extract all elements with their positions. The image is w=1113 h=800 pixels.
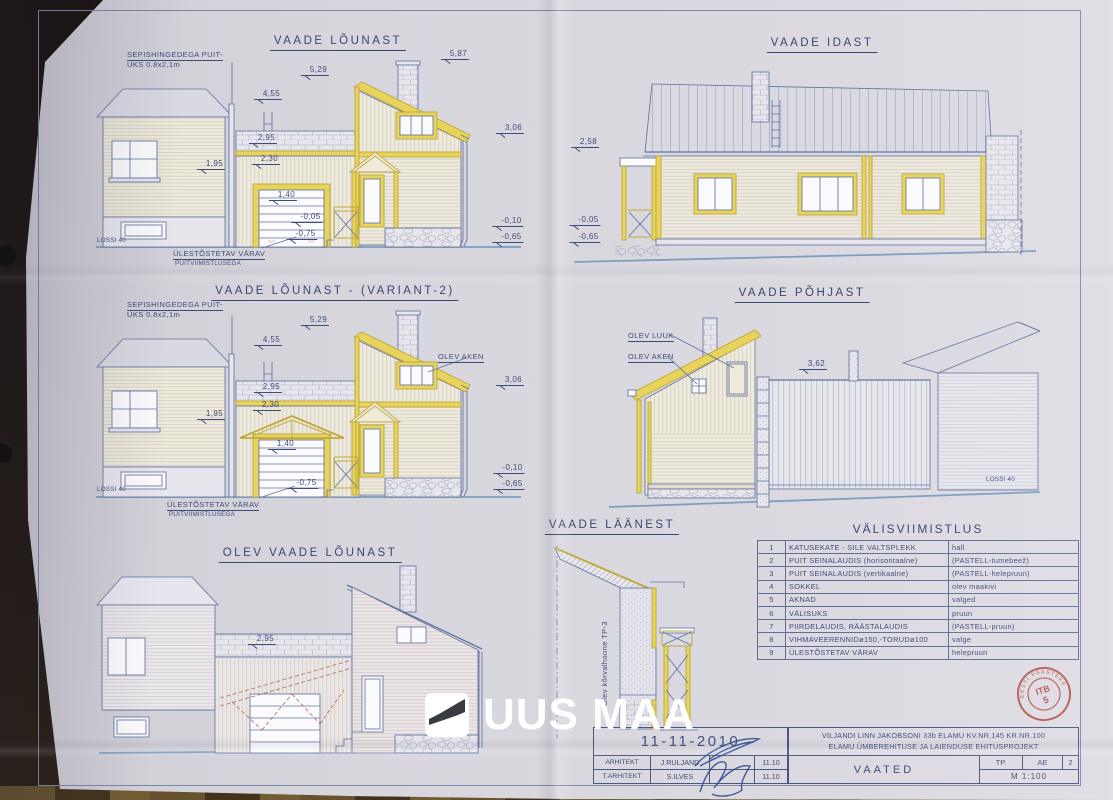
- finish-row-number: 2: [758, 554, 786, 566]
- finish-row-value: (PASTELL-pruun): [949, 620, 1078, 632]
- project-line1: VILJANDI LINN JAKOBSONI 33b ELAMU KV.NR.…: [822, 731, 1045, 742]
- approval-stamp: EESTI PÄÄSTEKESKUS ITB 5: [1006, 656, 1082, 732]
- uusmaa-logo-mark: [424, 692, 470, 738]
- finish-row-value: pruun: [949, 607, 1078, 619]
- finish-row-number: 5: [758, 594, 786, 606]
- sheet-title: VAATED: [788, 755, 980, 784]
- elevation-vaade-pohjast: [600, 300, 1040, 515]
- finish-row-value: hall: [949, 541, 1078, 553]
- finish-table-title: VÄLISVIIMISTLUS: [757, 522, 1079, 536]
- finish-row-value: valged: [949, 594, 1078, 606]
- stamp-line2: 5: [1042, 694, 1051, 706]
- finish-table-rows: 1KATUSEKATE - SILE VALTSPLEKKhall2PUIT S…: [757, 540, 1079, 660]
- finish-table: VÄLISVIIMISTLUS 1KATUSEKATE - SILE VALTS…: [757, 522, 1079, 660]
- svg-text:EESTI PÄÄSTEKESKUS: EESTI PÄÄSTEKESKUS: [1006, 656, 1067, 706]
- finish-row-item: SOKKEL: [786, 581, 949, 593]
- finish-table-row: 5AKNADvalged: [758, 594, 1078, 607]
- finish-table-row: 4SOKKELolev maakivi: [758, 581, 1078, 594]
- elevation-vaade-idast: [558, 55, 1040, 270]
- uusmaa-logo-text: UUS MAA: [483, 693, 695, 737]
- sheet-number-cell: 2: [1062, 755, 1079, 770]
- doc-type-cell: AE: [1022, 755, 1063, 770]
- finish-row-item: PIIRDELAUDIS, RÄÄSTALAUDIS: [786, 620, 949, 632]
- project-line2: ELAMU ÜMBEREHITUSE JA LAIENDUSE EHITUSPR…: [828, 742, 1038, 753]
- stage-cell: TP.: [979, 755, 1023, 770]
- finish-row-number: 7: [758, 620, 786, 632]
- finish-table-row: 7PIIRDELAUDIS, RÄÄSTALAUDIS(PASTELL-pruu…: [758, 620, 1078, 633]
- elevation-olev-vaade-lounast: [90, 558, 505, 790]
- finish-table-row: 2PUIT SEINALAUDIS (horisontaalne)(PASTEL…: [758, 554, 1078, 567]
- finish-table-row: 6VÄLISUKSpruun: [758, 607, 1078, 620]
- finish-row-item: KATUSEKATE - SILE VALTSPLEKK: [786, 541, 949, 553]
- finish-table-row: 8VIHMAVEERENNIDø150,-TORUDø100valge: [758, 633, 1078, 646]
- finish-row-item: PUIT SEINALAUDIS (vertikaalne): [786, 567, 949, 579]
- stamp-arc-text: EESTI PÄÄSTEKESKUS: [1006, 656, 1067, 706]
- finish-row-number: 1: [758, 541, 786, 553]
- finish-row-number: 8: [758, 633, 786, 645]
- uusmaa-logo: UUS MAA: [424, 692, 695, 738]
- finish-table-row: 3PUIT SEINALAUDIS (vertikaalne)(PASTELL-…: [758, 567, 1078, 580]
- finish-row-item: VÄLISUKS: [786, 607, 949, 619]
- scale-cell: M 1:100: [979, 769, 1079, 784]
- finish-table-row: 1KATUSEKATE - SILE VALTSPLEKKhall: [758, 541, 1078, 554]
- finish-row-value: (PASTELL-tumebeež): [949, 554, 1078, 566]
- finish-row-item: PUIT SEINALAUDIS (horisontaalne): [786, 554, 949, 566]
- elevation-variant2: [90, 300, 525, 525]
- finish-row-number: 9: [758, 647, 786, 659]
- finish-row-number: 3: [758, 567, 786, 579]
- elevation-vaade-lounast: [90, 55, 525, 270]
- finish-row-value: olev maakivi: [949, 581, 1078, 593]
- finish-row-value: valge: [949, 633, 1078, 645]
- finish-row-item: ÜLESTÕSTETAV VÄRAV: [786, 647, 949, 659]
- scanned-drawing-photo: VAADE LÕUNASTVAADE IDASTVAADE LÕUNAST - …: [0, 0, 1113, 800]
- finish-row-number: 4: [758, 581, 786, 593]
- finish-row-item: AKNAD: [786, 594, 949, 606]
- finish-row-item: VIHMAVEERENNIDø150,-TORUDø100: [786, 633, 949, 645]
- finish-row-number: 6: [758, 607, 786, 619]
- finish-row-value: (PASTELL-helepruun): [949, 567, 1078, 579]
